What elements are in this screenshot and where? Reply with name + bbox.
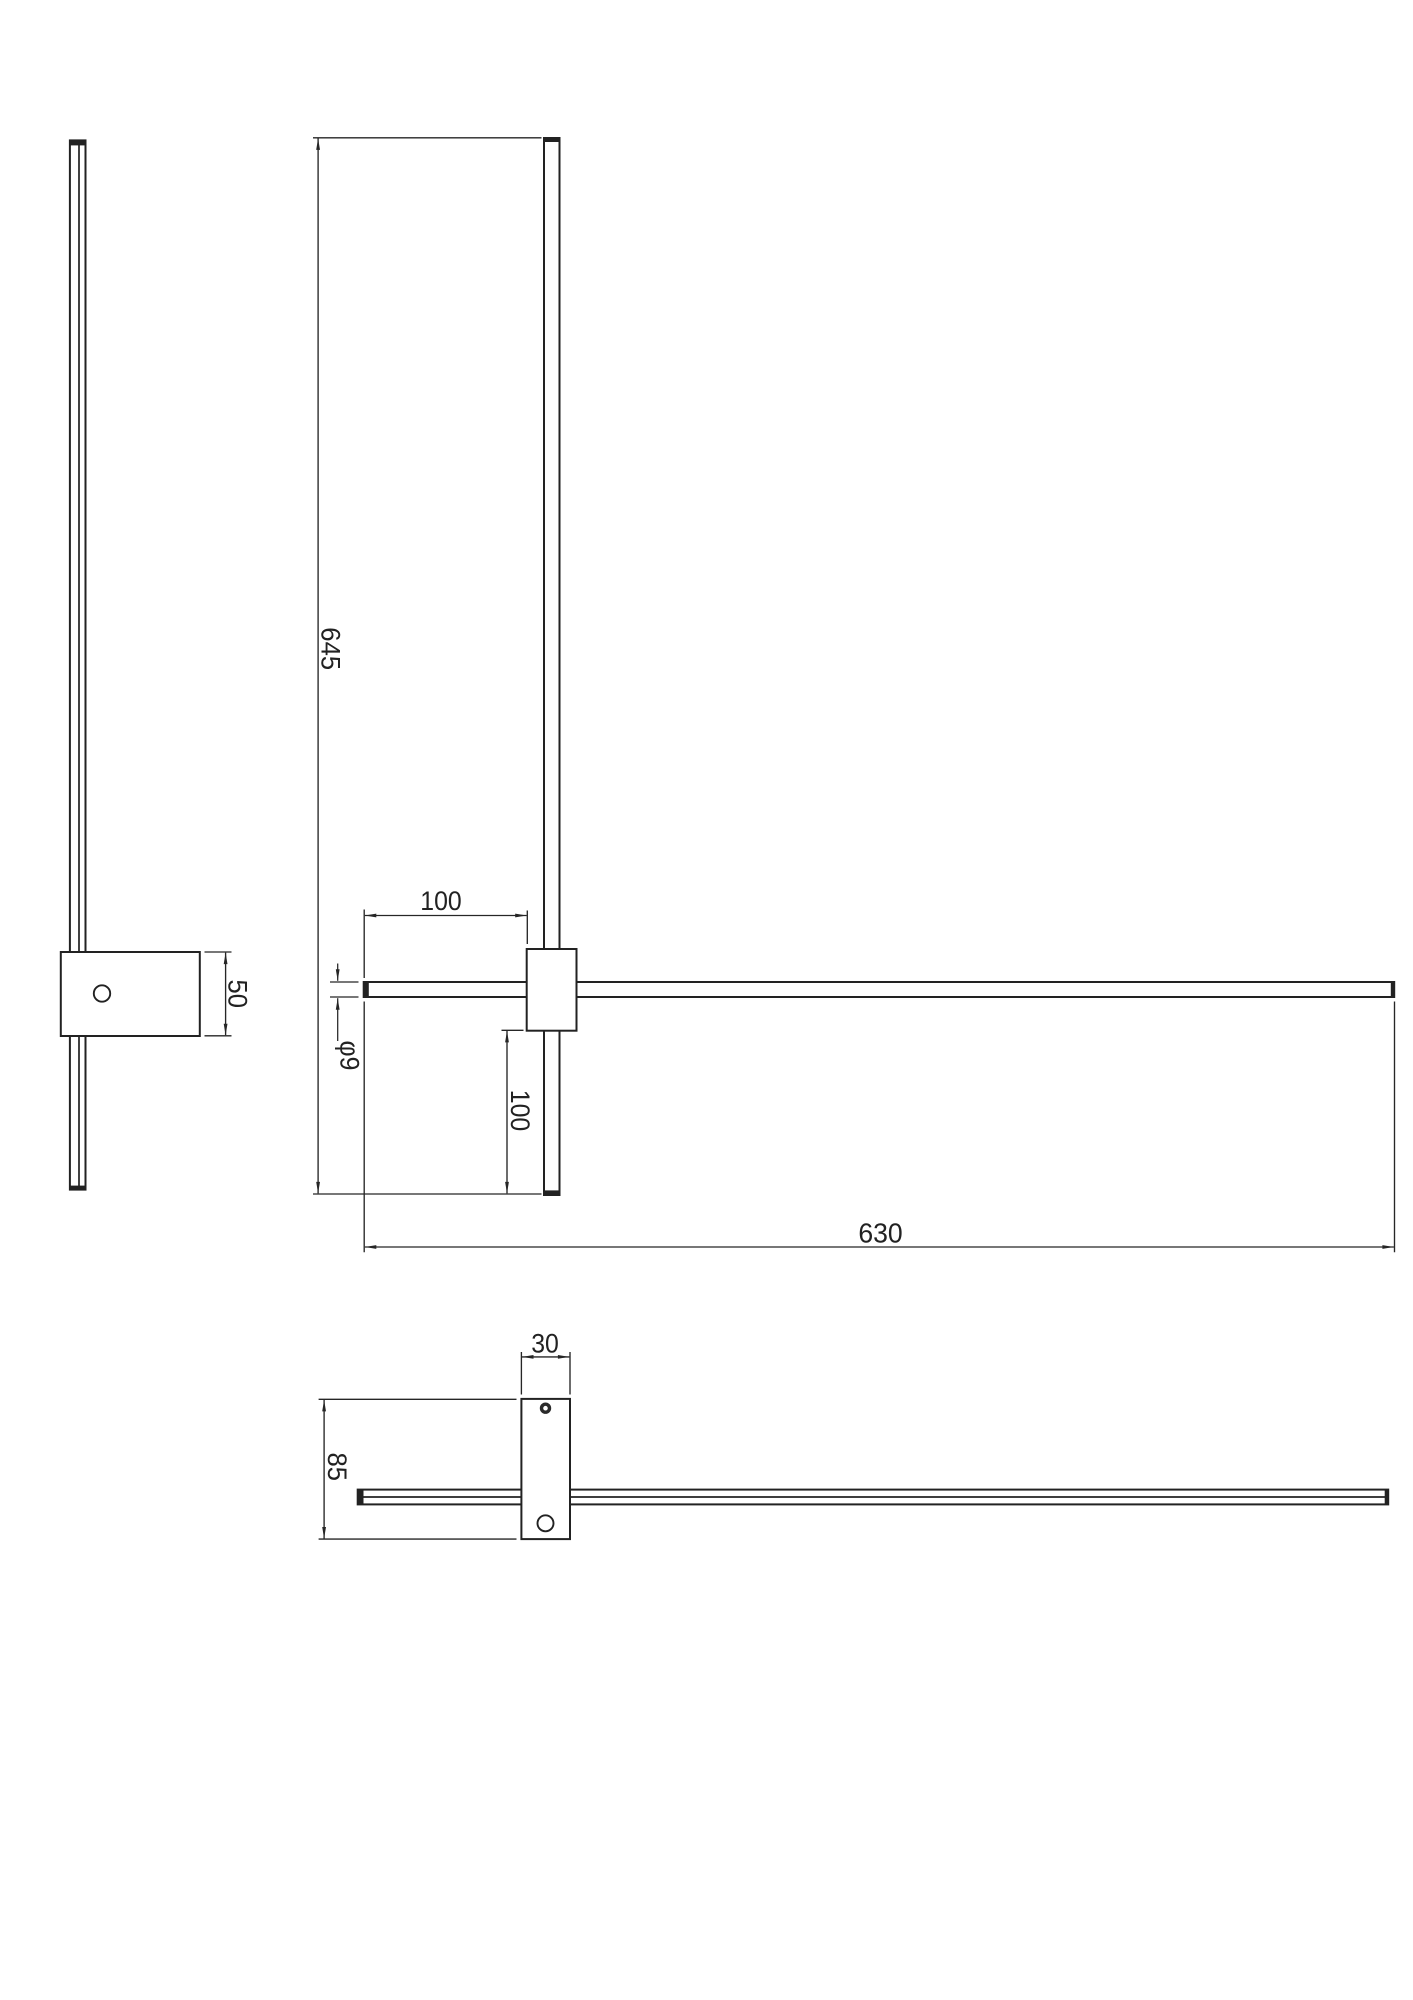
svg-text:100: 100 xyxy=(420,887,461,916)
svg-text:100: 100 xyxy=(505,1090,534,1131)
svg-text:85: 85 xyxy=(322,1452,353,1481)
svg-text:645: 645 xyxy=(315,627,346,670)
svg-text:φ9: φ9 xyxy=(334,1041,363,1071)
svg-text:30: 30 xyxy=(531,1330,559,1359)
svg-text:630: 630 xyxy=(858,1217,902,1249)
svg-text:50: 50 xyxy=(222,980,253,1009)
